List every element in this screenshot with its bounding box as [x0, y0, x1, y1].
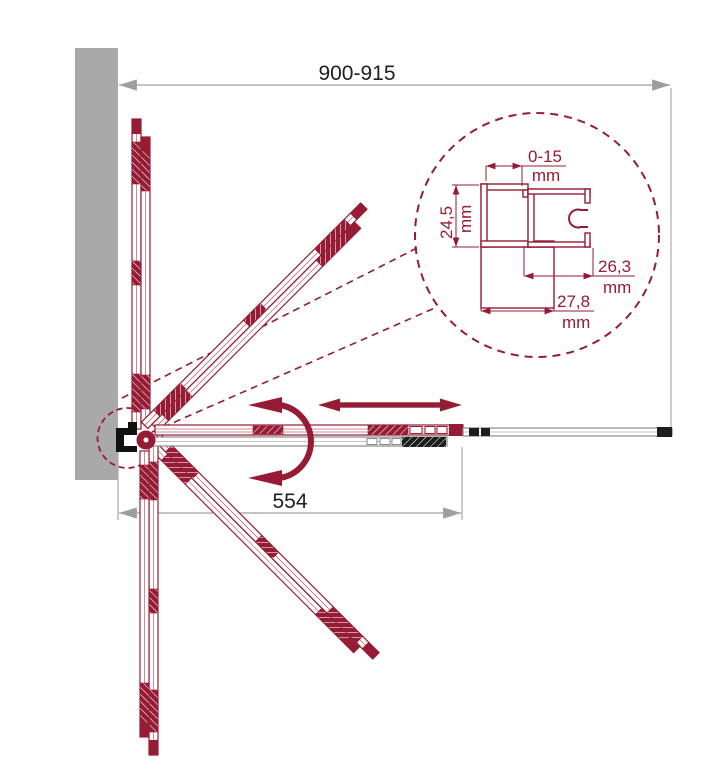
panel-section [481, 247, 554, 308]
wall-bracket [116, 428, 137, 452]
roller-block [402, 437, 446, 447]
overall-width-label: 900-915 [318, 62, 395, 85]
diagram-page: 900-915 554 [0, 0, 713, 781]
wall [75, 48, 118, 480]
gap-range-dimension: 0-15 mm [486, 147, 566, 186]
door-profile-section [528, 189, 590, 247]
profile-depth-value: 24,5 [437, 206, 456, 239]
outer-width-unit: mm [562, 313, 590, 332]
track-assembly [152, 424, 672, 447]
gap-range-value: 0-15 [528, 147, 562, 166]
folding-width-label: 554 [272, 490, 307, 513]
panel-down [140, 445, 158, 755]
detail-callout [98, 113, 660, 468]
glass-clip [569, 210, 588, 228]
panel-down-right [147, 433, 379, 665]
rail-end-cap [657, 427, 672, 437]
inner-width-unit: mm [603, 278, 631, 297]
callout-line-upper [122, 248, 417, 398]
profile-depth-dimension: 24,5 mm [437, 185, 479, 247]
outer-width-value: 27,8 [557, 292, 590, 311]
gap-range-unit: mm [532, 166, 560, 185]
detail-view: 0-15 mm 24,5 mm 26,3 mm 27,8 mm [437, 147, 635, 332]
panel-end-profile [449, 424, 463, 436]
profile-depth-unit: mm [456, 205, 475, 233]
panel-up [132, 119, 150, 429]
slide-arrow-icon [318, 399, 462, 412]
inner-width-value: 26,3 [598, 257, 631, 276]
diagram-canvas: 900-915 554 [0, 0, 713, 781]
